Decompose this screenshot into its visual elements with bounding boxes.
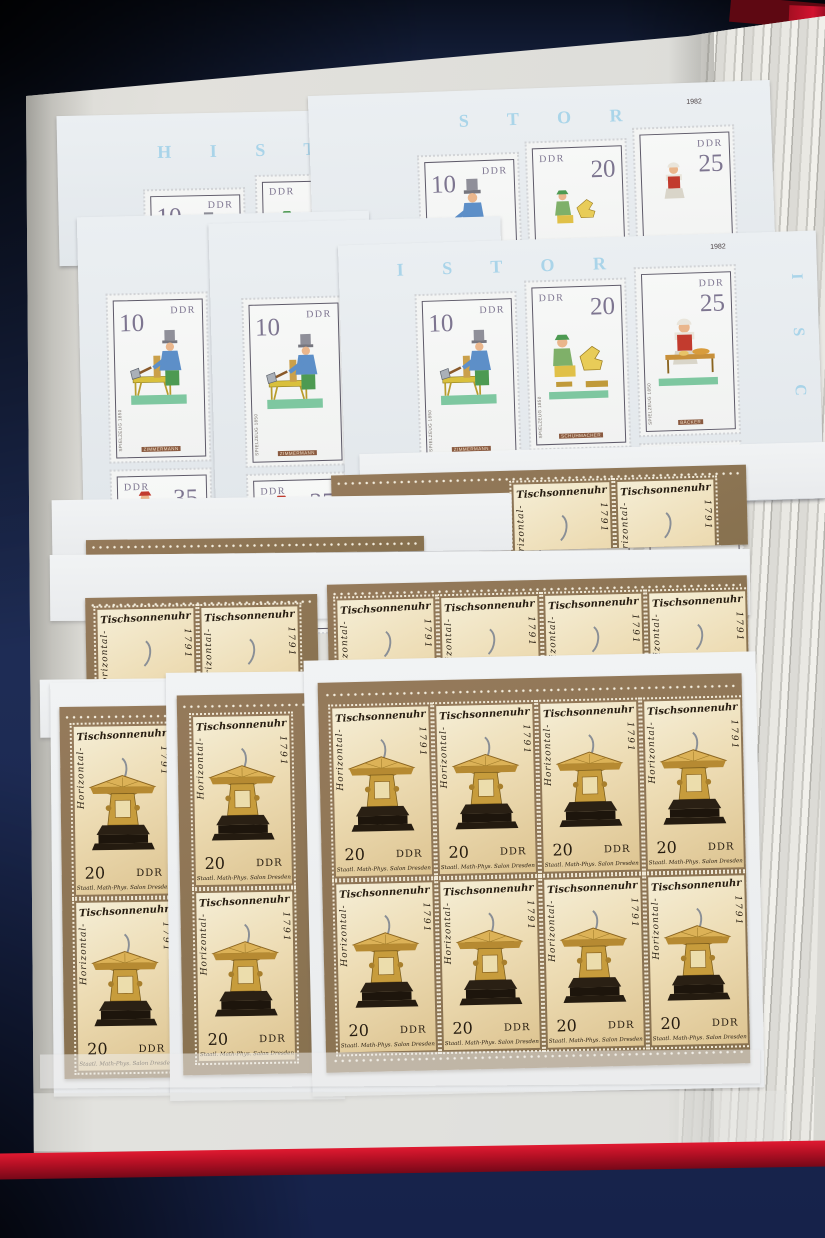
- stamp-sheet-sundial-main: Tischsonnenuhr 1791 Horizontal- 20 DDR S…: [318, 673, 751, 1073]
- sheet-margin-letters: H I S T: [157, 138, 333, 163]
- stamp-spielzeug-25-baecker: DDR 25 BÄCKER SPIELZEUG 1850: [635, 265, 740, 436]
- stamp-spielzeug-10-zimmermann: 10 DDR ZIMMERMANN SPIELZEUG 1850: [416, 292, 521, 463]
- sheet-corner-year: 1982: [710, 243, 726, 250]
- stamp-sundial-20: Tischsonnenuhr 1791 Horizontal- 20 DDR S…: [76, 901, 174, 1070]
- stamp-sundial-20: Tischsonnenuhr 1791 Horizontal- 20 DDR S…: [644, 699, 744, 869]
- toy-figure-zimmermann-icon: [256, 330, 332, 418]
- stamp-sundial-20: Tischsonnenuhr 1791 Horizontal- 20 DDR S…: [332, 706, 432, 876]
- stamp-sundial-20: Tischsonnenuhr 1791 Horizontal- 20 DDR S…: [193, 716, 292, 886]
- sheet-margin-letters: I S T O R: [396, 253, 623, 281]
- sundial-icon: [345, 906, 427, 1014]
- toy-figure-zimmermann-icon: [430, 325, 507, 413]
- album-page: H I S T 10 DDR DDR 20 S T O R 1982 10 DD…: [0, 0, 825, 1238]
- toy-figure-schuhmacher-icon: [540, 326, 616, 402]
- toy-figure-zimmermann-icon: [120, 326, 196, 414]
- stamp-sundial-20: Tischsonnenuhr 1791 Horizontal- 20 DDR S…: [540, 702, 640, 872]
- sundial-icon: [205, 916, 287, 1023]
- stamp-sundial-20: Tischsonnenuhr 1791 Horizontal- 20 DDR S…: [336, 882, 436, 1052]
- stamp-sundial-20: Tischsonnenuhr 1791 Horizontal- 20 DDR S…: [436, 704, 536, 874]
- toy-figure-icon: [647, 157, 709, 219]
- sundial-icon: [553, 902, 635, 1010]
- sundial-icon: [445, 728, 527, 836]
- stamp-sundial-top: Tischsonnenuhr 1791 Horizontal-: [513, 482, 613, 555]
- sundial-icon: [449, 904, 531, 1012]
- stamp-spielzeug-20-schuhmacher: DDR 20 SCHUHMACHER SPIELZEUG 1850: [525, 279, 630, 450]
- photo-stamp-album: { "scene_colors": { "table_navy": "#1d2b…: [0, 0, 825, 1238]
- sheet-corner-year: 1982: [686, 98, 702, 106]
- stamp-sundial-20: Tischsonnenuhr 1791 Horizontal- 20 DDR S…: [74, 725, 172, 894]
- sundial-icon: [341, 731, 423, 839]
- stamp-sundial-20: Tischsonnenuhr 1791 Horizontal- 20 DDR S…: [440, 880, 540, 1050]
- sundial-icon: [84, 926, 165, 1033]
- stamp-sundial-top: Tischsonnenuhr 1791 Horizontal-: [617, 479, 717, 555]
- toy-figure-baecker-icon: [649, 313, 725, 389]
- sundial-icon: [522, 506, 605, 555]
- sheet-margin-letters: S T O R: [458, 105, 639, 132]
- perforation-dots: [90, 541, 418, 550]
- sundial-icon: [653, 723, 735, 831]
- stamp-sundial-20: Tischsonnenuhr 1791 Horizontal- 20 DDR S…: [196, 891, 295, 1061]
- stockbook-pocket-strip: [40, 1049, 760, 1088]
- sundial-icon: [82, 750, 163, 857]
- stamp-spielzeug-10-zimmermann: 10 DDR ZIMMERMANN SPIELZEUG 1850: [242, 296, 346, 467]
- stamp-sundial-20: Tischsonnenuhr 1791 Horizontal- 20 DDR S…: [544, 878, 644, 1048]
- sundial-icon: [201, 740, 283, 847]
- stamp-spielzeug-10-zimmermann: 10 DDR ZIMMERMANN SPIELZEUG 1850: [107, 292, 211, 462]
- sundial-icon: [657, 899, 739, 1007]
- perforation-dots: [324, 683, 736, 697]
- stamp-sundial-20: Tischsonnenuhr 1791 Horizontal- 20 DDR S…: [648, 875, 748, 1045]
- sundial-icon: [549, 726, 631, 834]
